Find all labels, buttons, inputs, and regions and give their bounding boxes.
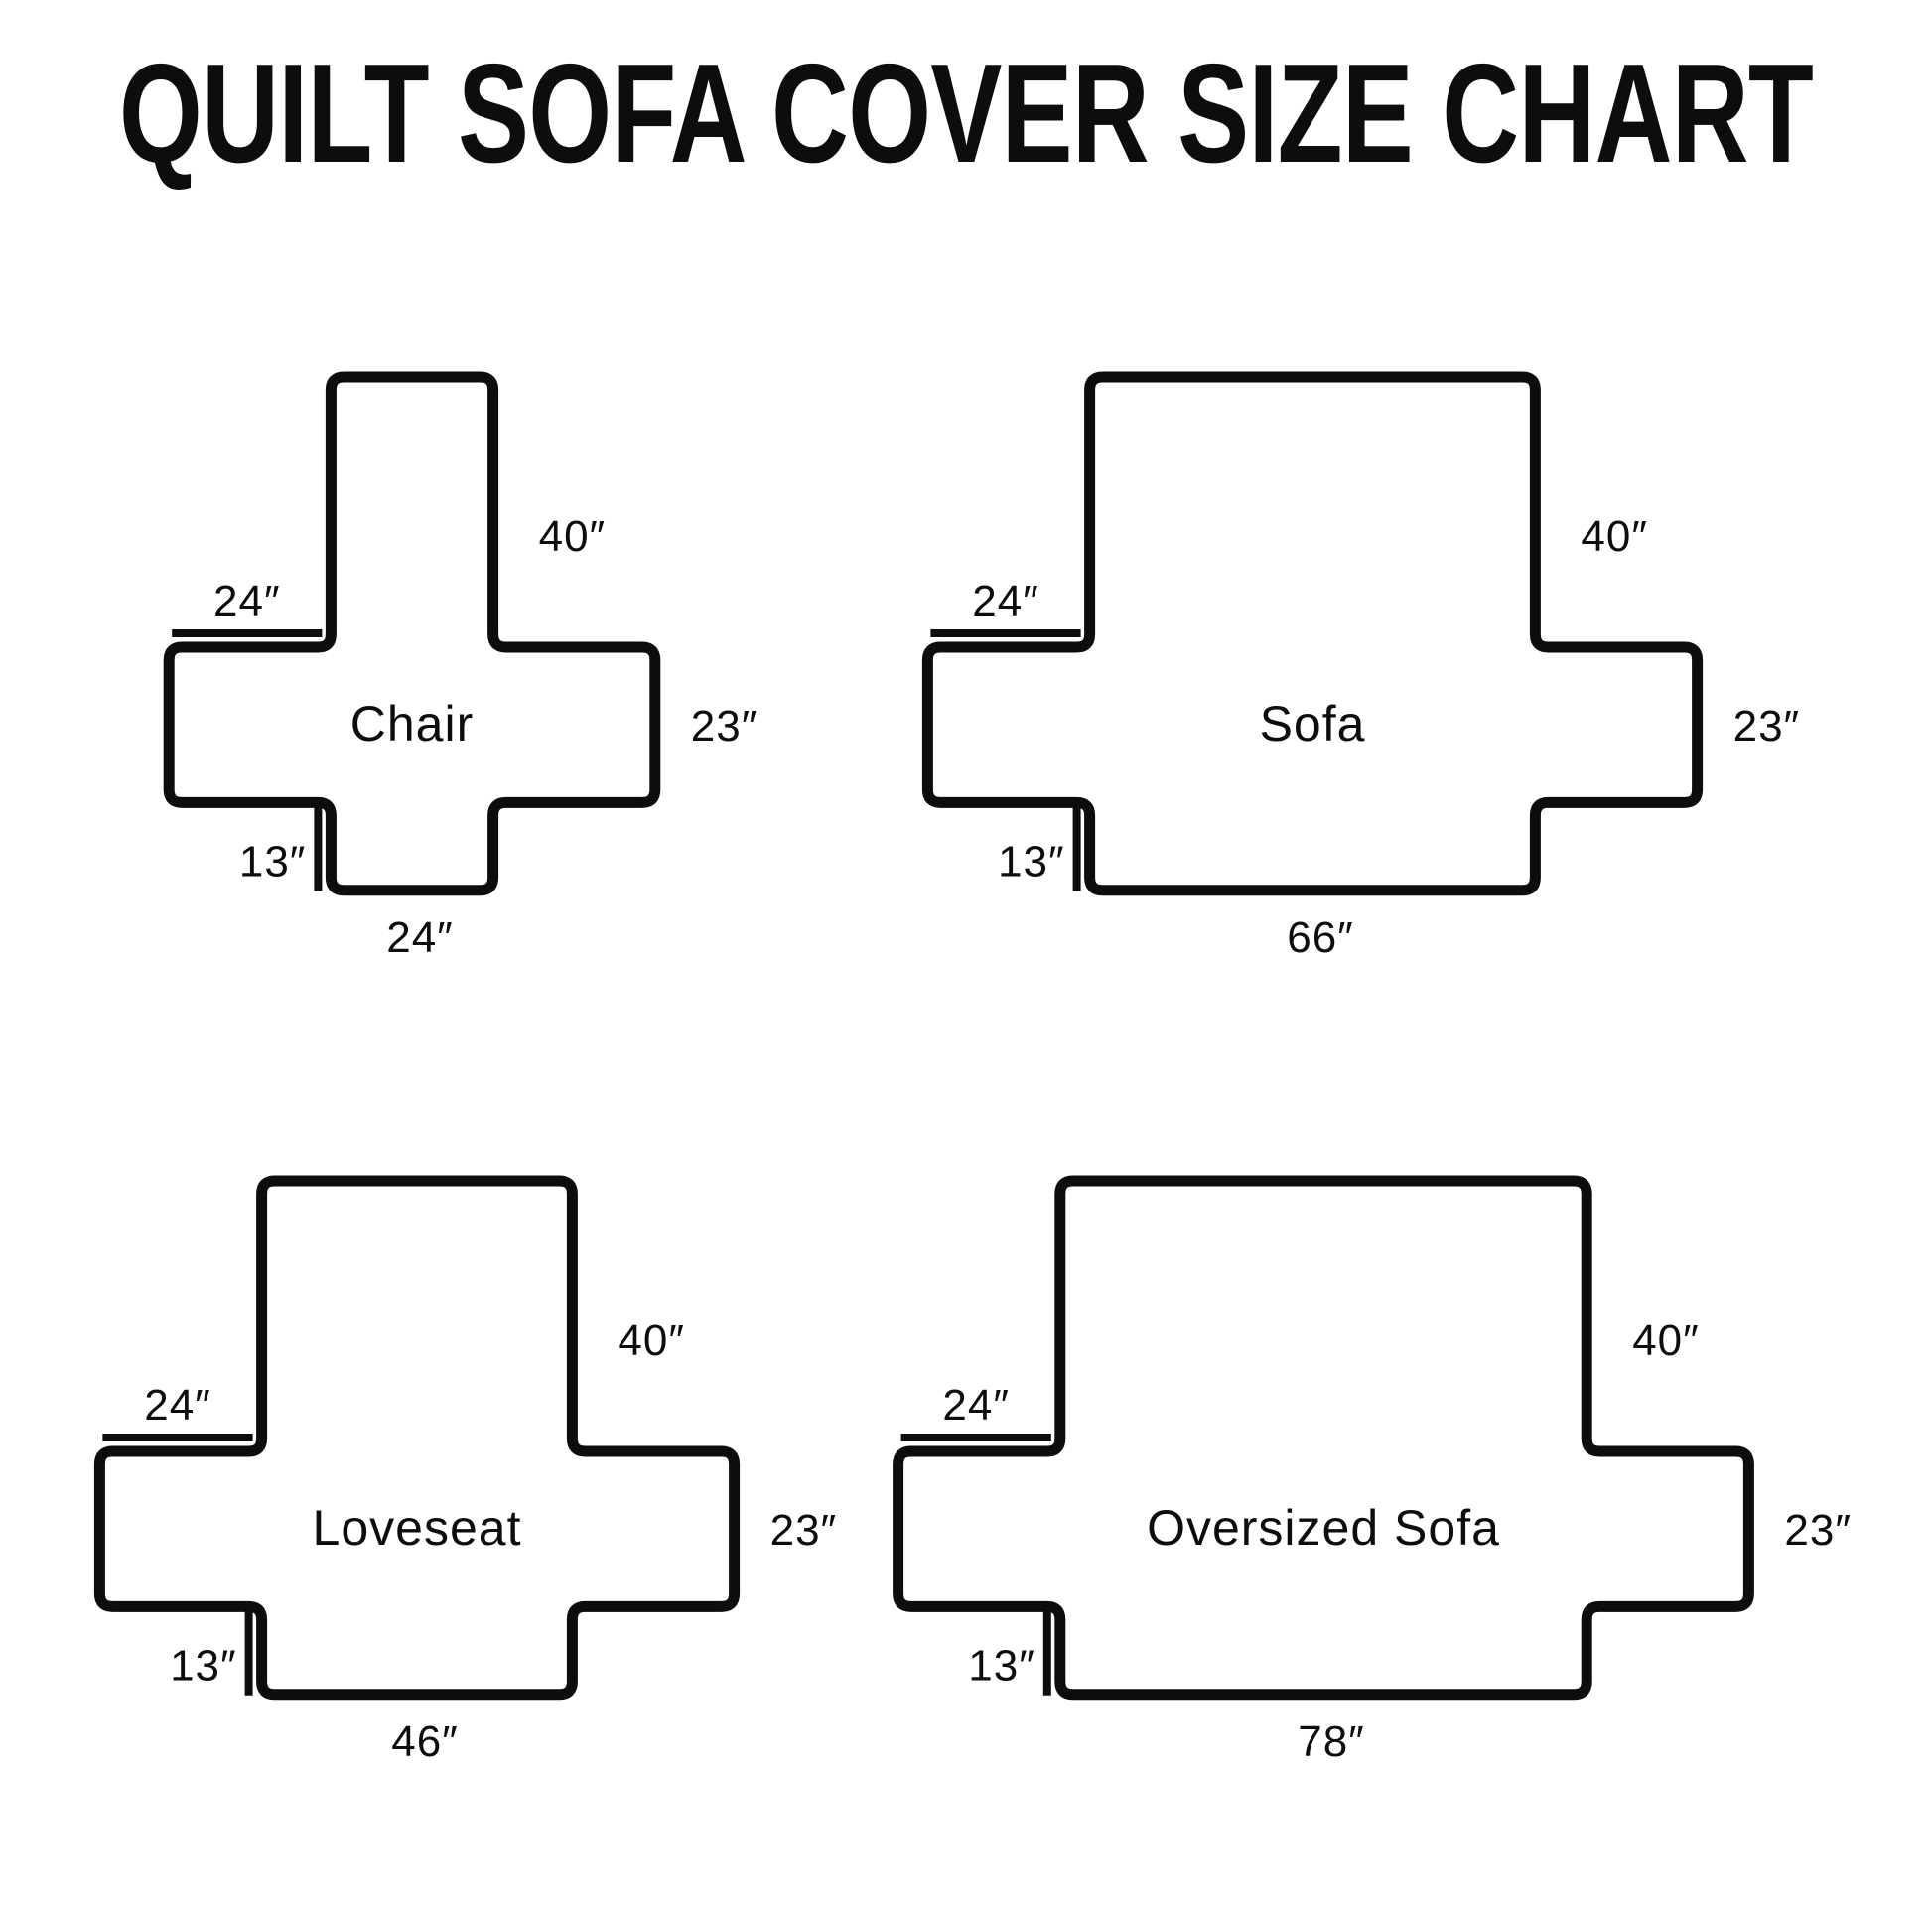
oversized-sofa-arm-extension-label: 24″ — [942, 1381, 1010, 1430]
chair-arm-extension-label: 24″ — [213, 577, 281, 625]
chair-back-height-label: 40″ — [539, 512, 607, 561]
sofa-arm-extension-label: 24″ — [972, 577, 1039, 625]
oversized-sofa-bottom-width-label: 78″ — [1298, 1717, 1365, 1766]
loveseat-bottom-width-label: 46″ — [391, 1717, 459, 1766]
sofa-skirt-depth-label: 13″ — [998, 837, 1065, 886]
oversized-sofa-skirt-depth-label: 13″ — [968, 1641, 1035, 1690]
sofa-name-label: Sofa — [1260, 696, 1366, 752]
oversized-sofa-arm-side-label: 23″ — [1784, 1506, 1852, 1555]
chair-skirt-depth-label: 13″ — [239, 837, 307, 886]
size-chart-diagram: QUILT SOFA COVER SIZE CHART Chair40″24″2… — [0, 0, 1932, 1918]
shapes-layer: Chair40″24″23″13″24″Sofa40″24″23″13″66″L… — [99, 377, 1852, 1766]
loveseat-skirt-depth-label: 13″ — [170, 1641, 237, 1690]
page-title: QUILT SOFA COVER SIZE CHART — [119, 35, 1813, 193]
loveseat-name-label: Loveseat — [313, 1500, 522, 1556]
shape-loveseat: Loveseat40″24″23″13″46″ — [99, 1181, 837, 1766]
oversized-sofa-name-label: Oversized Sofa — [1147, 1500, 1500, 1556]
chair-bottom-width-label: 24″ — [386, 913, 454, 962]
loveseat-arm-side-label: 23″ — [770, 1506, 838, 1555]
shape-oversized-sofa: Oversized Sofa40″24″23″13″78″ — [898, 1181, 1852, 1766]
sofa-back-height-label: 40″ — [1581, 512, 1648, 561]
chair-arm-side-label: 23″ — [691, 702, 759, 751]
shape-chair: Chair40″24″23″13″24″ — [169, 377, 758, 962]
loveseat-back-height-label: 40″ — [618, 1316, 685, 1365]
oversized-sofa-back-height-label: 40″ — [1632, 1316, 1700, 1365]
shape-sofa: Sofa40″24″23″13″66″ — [927, 377, 1800, 962]
sofa-arm-side-label: 23″ — [1733, 702, 1801, 751]
loveseat-arm-extension-label: 24″ — [144, 1381, 211, 1430]
chair-name-label: Chair — [350, 696, 474, 752]
sofa-bottom-width-label: 66″ — [1287, 913, 1354, 962]
